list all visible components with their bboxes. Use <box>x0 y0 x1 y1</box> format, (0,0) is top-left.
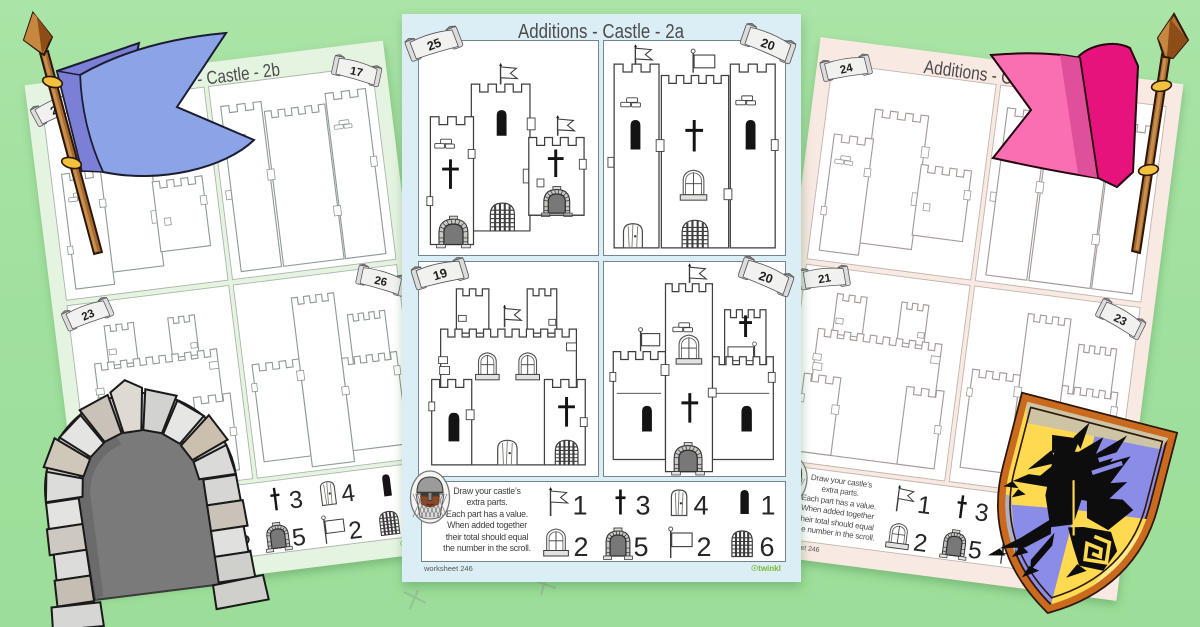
svg-text:6: 6 <box>759 532 774 562</box>
svg-text:3: 3 <box>635 491 650 521</box>
svg-text:1: 1 <box>760 491 775 521</box>
svg-text:2: 2 <box>696 532 711 562</box>
svg-text:2: 2 <box>573 532 588 562</box>
svg-text:1: 1 <box>915 492 932 521</box>
svg-text:1: 1 <box>572 491 587 521</box>
svg-text:2: 2 <box>911 529 928 558</box>
svg-text:2: 2 <box>347 517 364 545</box>
svg-text:5: 5 <box>633 532 648 562</box>
svg-text:4: 4 <box>693 491 708 521</box>
svg-text:21: 21 <box>817 272 832 286</box>
svg-text:4: 4 <box>339 480 356 508</box>
